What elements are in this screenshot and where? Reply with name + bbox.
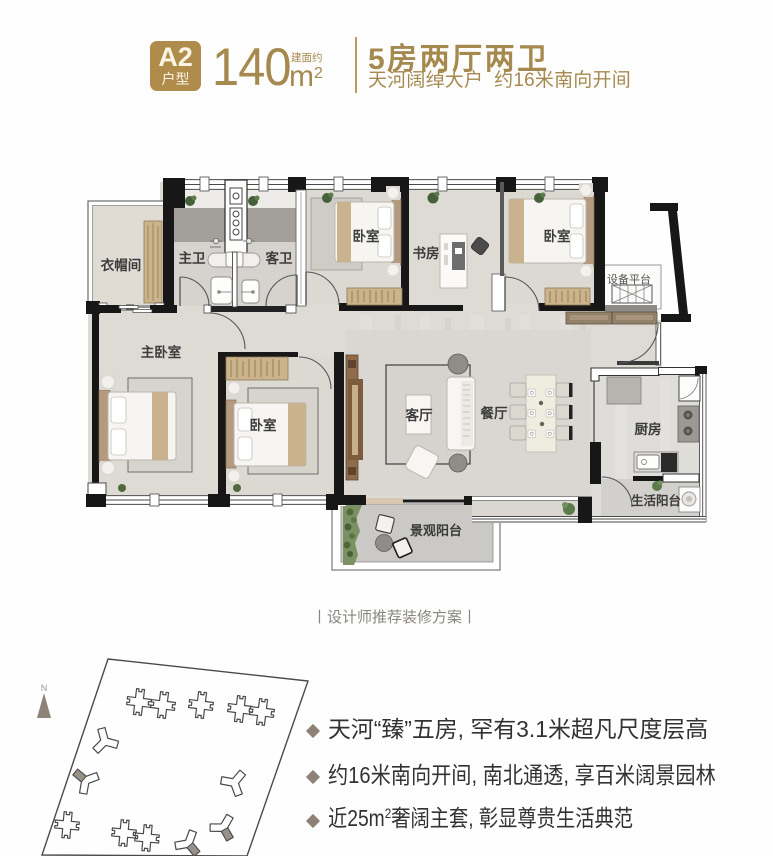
svg-text:N: N xyxy=(41,683,48,693)
svg-text:厨房: 厨房 xyxy=(635,421,662,437)
svg-text:卧室: 卧室 xyxy=(353,228,380,244)
svg-text:卧室: 卧室 xyxy=(250,417,277,433)
svg-text:客厅: 客厅 xyxy=(405,407,433,423)
svg-text:景观阳台: 景观阳台 xyxy=(410,523,462,538)
svg-text:主卫: 主卫 xyxy=(179,250,206,266)
svg-text:书房: 书房 xyxy=(413,245,440,261)
svg-text:设备平台: 设备平台 xyxy=(607,272,651,286)
svg-text:主卧室: 主卧室 xyxy=(141,344,182,360)
svg-text:餐厅: 餐厅 xyxy=(480,405,508,421)
svg-text:卧室: 卧室 xyxy=(544,228,572,244)
svg-text:衣帽间: 衣帽间 xyxy=(101,257,142,273)
svg-text:客卫: 客卫 xyxy=(265,250,293,266)
svg-text:生活阳台: 生活阳台 xyxy=(631,493,681,508)
